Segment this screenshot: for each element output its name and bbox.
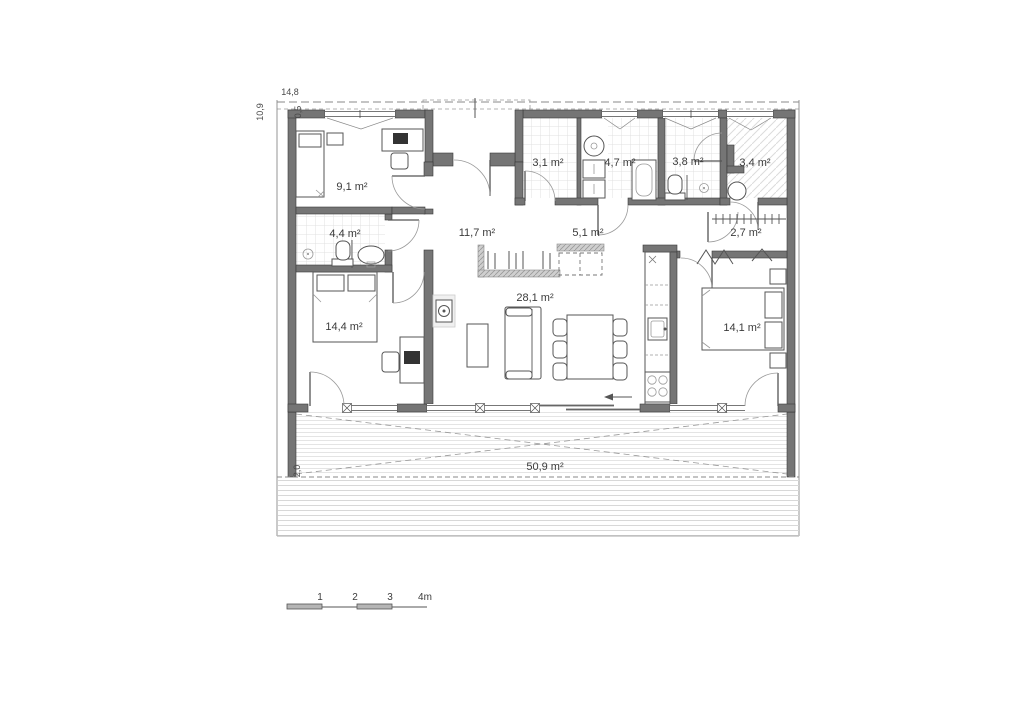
dining-table [567,315,613,379]
toilet [336,241,350,260]
dim-overall-width: 14,8 [281,87,299,97]
terrace [277,412,799,536]
chair [553,341,567,358]
dim-roof-overhang: 0,5 [293,106,303,119]
window-bedroom-right-south [727,404,745,412]
nightstand [327,133,343,145]
floor-plan-page: 9,1 m² 3,1 m² 4,7 m² 3,8 m² 3,4 m² 4,4 m… [0,0,1024,724]
scale-tick-1: 1 [317,592,323,603]
room-label-bathroom-main: 4,7 m² [604,157,636,169]
room-label-ensuite: 4,4 m² [329,228,361,240]
kitchen [645,252,670,404]
deck-steps [278,479,799,536]
coffee-table [467,324,488,367]
room-label-bathroom-entry: 3,1 m² [532,157,564,169]
washing-machine-icon [584,136,604,156]
window-kitchen-south [670,404,722,412]
room-label-living-room: 28,1 m² [516,292,554,304]
pillow [348,275,375,291]
sofa [505,307,541,379]
room-label-bedroom-small: 9,1 m² [336,181,368,193]
scale-tick-4m: 4m [418,592,432,603]
desk-chair [391,153,408,169]
pillow [317,275,344,291]
room-label-hallway: 11,7 m² [459,227,496,239]
room-label-wardrobe: 2,7 m² [730,227,762,239]
scale-tick-3: 3 [387,592,393,603]
room-label-bedroom-right: 14,1 m² [723,322,761,334]
boiler-icon [728,182,746,200]
dining-set [553,315,627,380]
scale-bar: 1 2 3 4m [287,592,432,609]
room-label-closet: 5,1 m² [572,227,604,239]
washbasin [358,246,384,264]
window-bedroom-left-south [345,404,397,412]
room-label-terrace: 50,9 m² [526,461,564,473]
pillow [765,322,782,348]
chair [553,319,567,336]
floor-plan-drawing: 9,1 m² 3,1 m² 4,7 m² 3,8 m² 3,4 m² 4,4 m… [0,0,1024,724]
closet-top [557,244,604,251]
dim-overall-depth: 10,9 [255,103,265,121]
scale-tick-2: 2 [352,592,358,603]
chair [613,341,627,358]
stove-cooktop [645,372,670,402]
pillow [765,292,782,318]
computer-icon [404,351,420,364]
pillow [299,134,321,147]
desk-chair [382,352,399,372]
chair [613,319,627,336]
toilet [668,175,682,194]
room-label-wc: 3,8 m² [672,156,704,168]
room-label-utility: 3,4 m² [739,157,771,169]
chair [613,363,627,380]
computer-icon [393,133,408,144]
nightstand [770,269,786,284]
dim-terrace-depth: 2,0 [292,465,302,478]
chair [553,363,567,380]
nightstand [770,353,786,368]
room-label-bedroom-left: 14,4 m² [325,321,363,333]
